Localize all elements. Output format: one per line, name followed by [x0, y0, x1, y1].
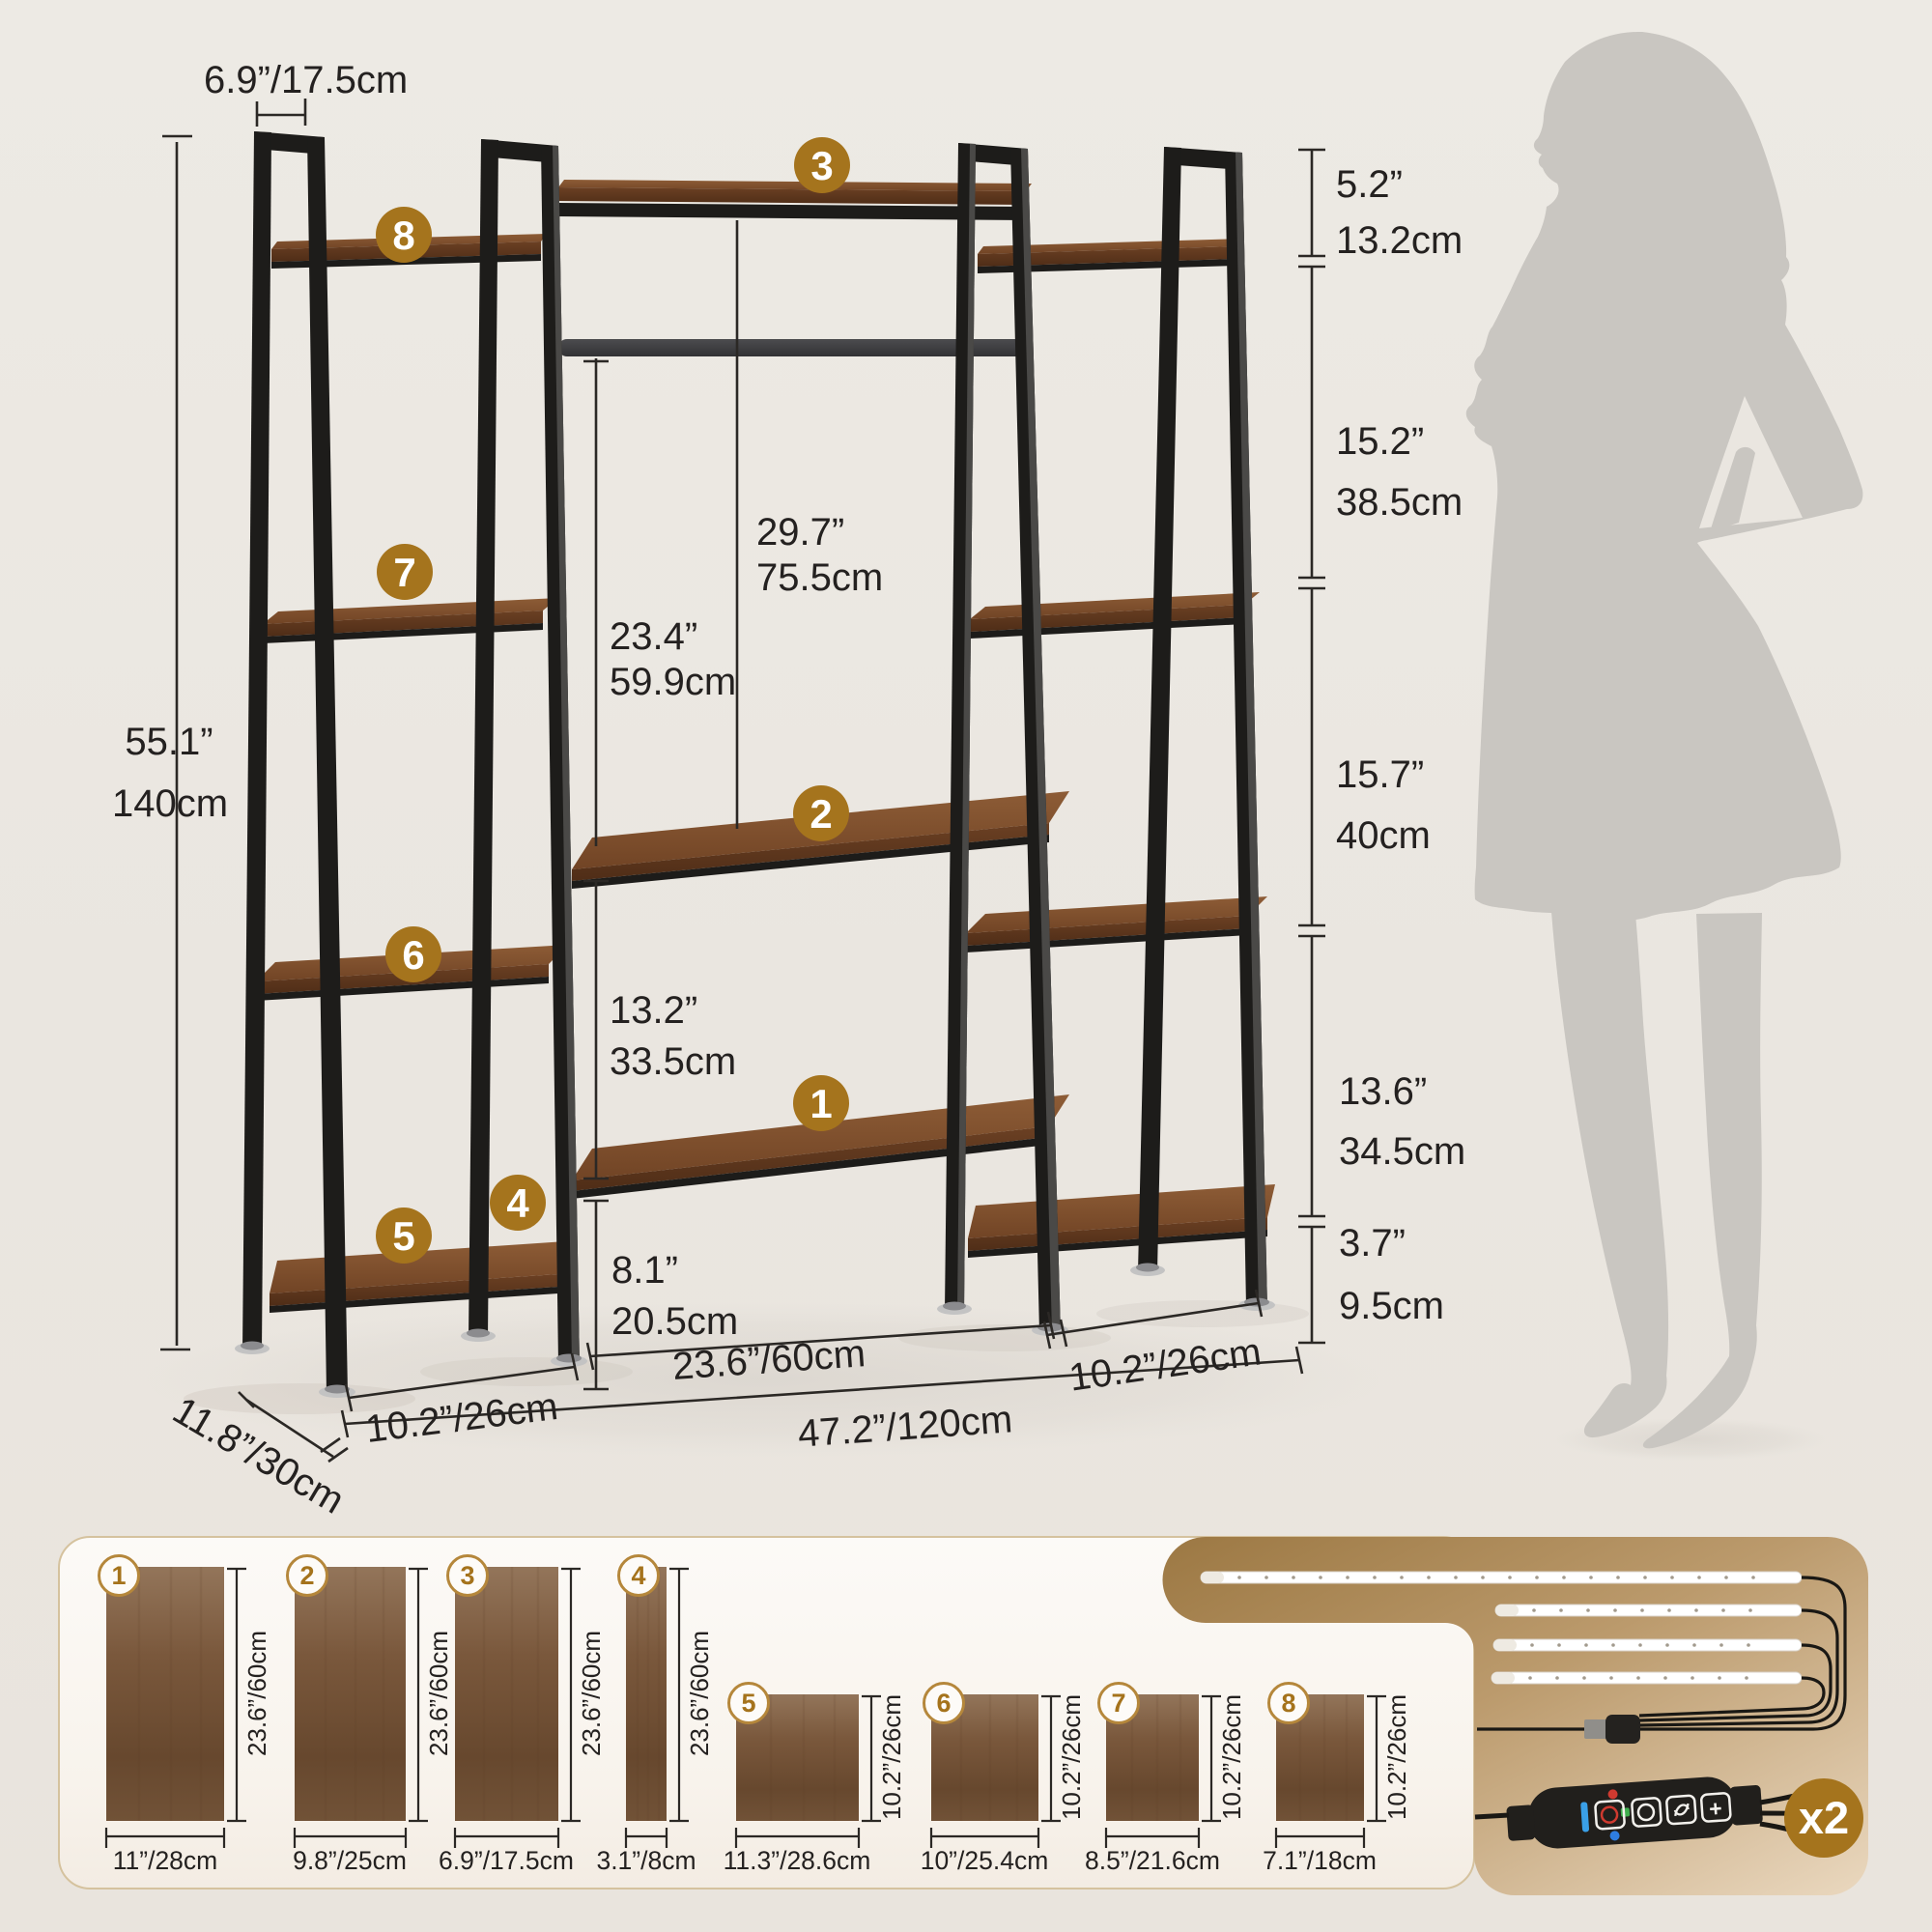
svg-text:4: 4	[506, 1180, 529, 1226]
svg-text:7: 7	[1111, 1689, 1125, 1718]
svg-text:10”/25.4cm: 10”/25.4cm	[921, 1846, 1049, 1875]
svg-text:15.2”: 15.2”	[1336, 420, 1424, 463]
svg-text:2: 2	[299, 1561, 314, 1590]
svg-text:2: 2	[810, 791, 832, 837]
svg-text:10.2”/26cm: 10.2”/26cm	[1217, 1694, 1246, 1820]
svg-text:13.2”: 13.2”	[610, 989, 697, 1032]
svg-text:7.1”/18cm: 7.1”/18cm	[1263, 1846, 1377, 1875]
svg-text:+: +	[1708, 1796, 1722, 1822]
svg-text:38.5cm: 38.5cm	[1336, 481, 1463, 524]
svg-text:10.2”/26cm: 10.2”/26cm	[1382, 1694, 1411, 1820]
svg-text:15.7”: 15.7”	[1336, 753, 1424, 796]
svg-text:6: 6	[402, 932, 424, 978]
svg-text:23.4”: 23.4”	[610, 615, 697, 658]
svg-text:29.7”: 29.7”	[756, 511, 844, 554]
svg-text:8: 8	[1281, 1689, 1295, 1718]
svg-text:8.5”/21.6cm: 8.5”/21.6cm	[1085, 1846, 1220, 1875]
svg-text:23.6”/60cm: 23.6”/60cm	[577, 1631, 606, 1756]
svg-text:9.5cm: 9.5cm	[1339, 1285, 1444, 1327]
svg-text:34.5cm: 34.5cm	[1339, 1130, 1465, 1173]
svg-text:3: 3	[810, 143, 833, 188]
svg-text:55.1”: 55.1”	[125, 721, 213, 763]
svg-text:7: 7	[393, 550, 415, 595]
svg-text:x2: x2	[1799, 1792, 1849, 1843]
svg-text:6.9”/17.5cm: 6.9”/17.5cm	[439, 1846, 574, 1875]
svg-text:13.6”: 13.6”	[1339, 1070, 1427, 1113]
svg-text:1: 1	[111, 1561, 126, 1590]
svg-text:140cm: 140cm	[112, 782, 228, 825]
svg-text:6.9”/17.5cm: 6.9”/17.5cm	[204, 59, 408, 101]
svg-text:3.7”: 3.7”	[1339, 1222, 1406, 1264]
svg-text:1: 1	[810, 1081, 832, 1126]
svg-text:3: 3	[460, 1561, 474, 1590]
svg-text:75.5cm: 75.5cm	[756, 556, 883, 599]
svg-text:10.2”/26cm: 10.2”/26cm	[1057, 1694, 1086, 1820]
svg-text:11”/28cm: 11”/28cm	[113, 1846, 218, 1875]
svg-text:33.5cm: 33.5cm	[610, 1040, 736, 1083]
svg-text:9.8”/25cm: 9.8”/25cm	[293, 1846, 407, 1875]
svg-text:20.5cm: 20.5cm	[611, 1300, 738, 1343]
svg-text:5: 5	[741, 1689, 755, 1718]
svg-text:5: 5	[392, 1213, 414, 1259]
svg-text:23.6”/60cm: 23.6”/60cm	[685, 1631, 714, 1756]
svg-text:23.6”/60cm: 23.6”/60cm	[242, 1631, 271, 1756]
svg-text:40cm: 40cm	[1336, 814, 1431, 857]
svg-text:8: 8	[392, 213, 414, 258]
svg-text:11.3”/28.6cm: 11.3”/28.6cm	[724, 1846, 871, 1875]
svg-text:23.6”/60cm: 23.6”/60cm	[424, 1631, 453, 1756]
svg-text:10.2”/26cm: 10.2”/26cm	[877, 1694, 906, 1820]
svg-text:5.2”: 5.2”	[1336, 163, 1403, 206]
svg-text:4: 4	[631, 1561, 645, 1590]
svg-text:6: 6	[936, 1689, 951, 1718]
svg-text:13.2cm: 13.2cm	[1336, 219, 1463, 262]
svg-text:8.1”: 8.1”	[611, 1249, 678, 1292]
svg-text:3.1”/8cm: 3.1”/8cm	[596, 1846, 696, 1875]
svg-text:59.9cm: 59.9cm	[610, 661, 736, 703]
